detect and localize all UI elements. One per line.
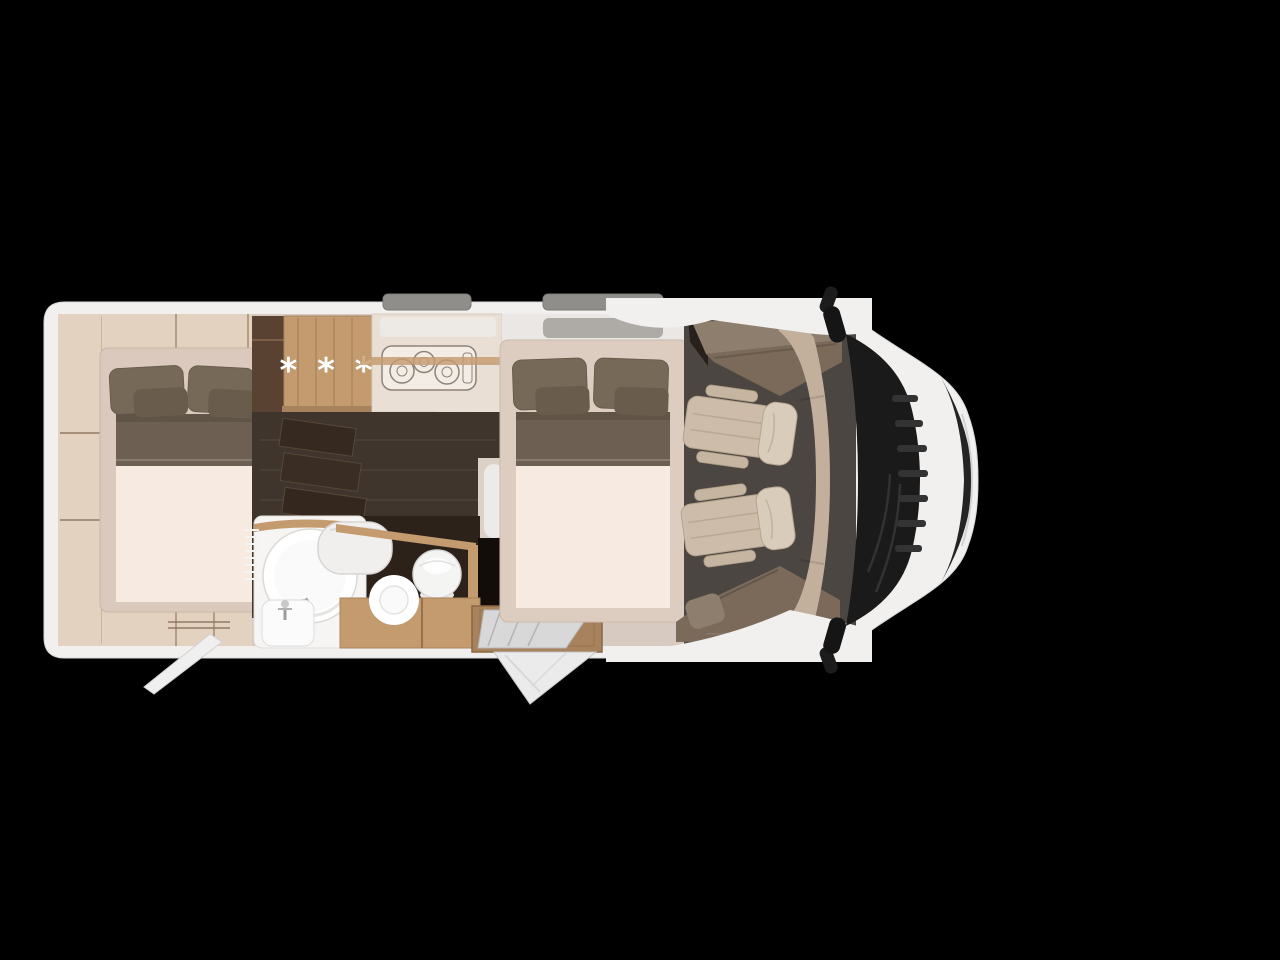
front-bed-pillow-right <box>593 358 670 417</box>
rear-bed-pillow-right <box>187 365 261 419</box>
rear-bed <box>100 348 266 612</box>
wardrobe-fridge: * * * <box>252 316 377 420</box>
lounge <box>676 316 856 644</box>
skylight-1 <box>383 294 471 310</box>
front-bed-duvet <box>516 412 670 466</box>
front-bed <box>500 314 688 622</box>
motorhome-floorplan-scene: * * * <box>0 0 1280 960</box>
rear-bed-pillow-left <box>109 365 189 419</box>
washbasin <box>262 600 314 646</box>
front-bed-pillow-left <box>512 358 590 417</box>
cooktop <box>382 346 476 390</box>
motorhome-floorplan: * * * <box>0 0 1280 960</box>
